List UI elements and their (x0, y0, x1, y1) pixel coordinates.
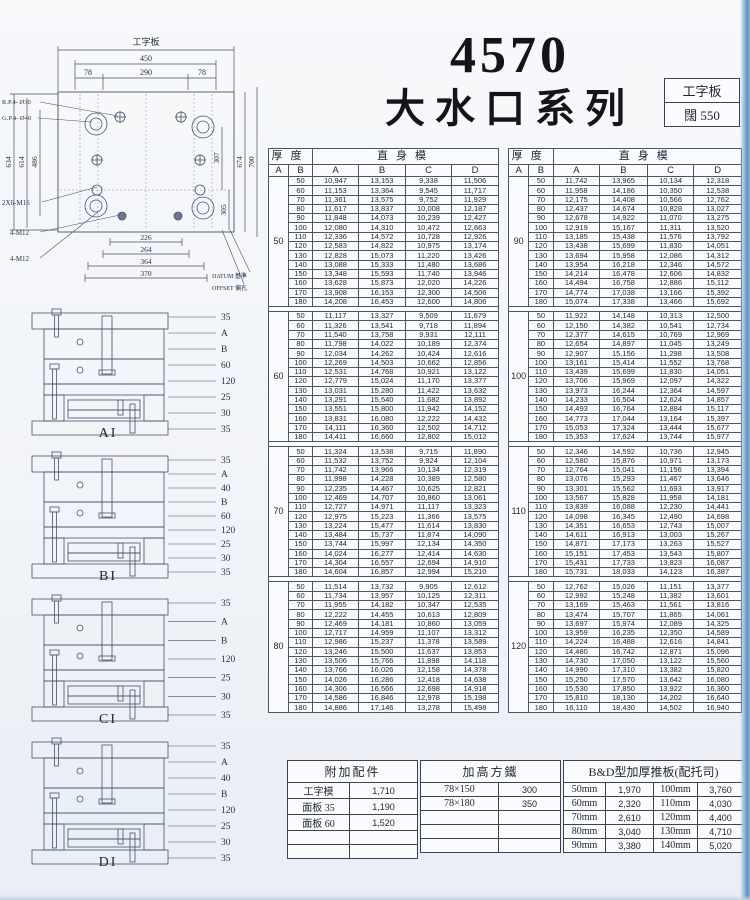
dim-value: 11,311 (647, 223, 694, 232)
table-row: 11012,33614,57210,72812,926 (269, 232, 499, 241)
dim-value: 14,467 (359, 484, 406, 493)
table-row: 10012,91915,16711,31113,520 (509, 223, 742, 232)
header-straight-mold: 直身模 (553, 149, 741, 165)
item-label (421, 811, 499, 825)
dim-value: 13,758 (359, 330, 406, 339)
table-row: 12012,77915,02411,17013,377 (269, 377, 499, 386)
dim-value: 11,170 (406, 377, 452, 386)
dim-value: 16,913 (600, 530, 648, 539)
diagram-dim-label: 25 (221, 822, 231, 832)
dim-value: 15,677 (694, 423, 742, 432)
item-label (421, 825, 499, 839)
table-row: 18015,07417,33813,46615,692 (509, 297, 742, 306)
dim-value: 11,874 (406, 530, 452, 539)
dim-value: 15,560 (694, 656, 742, 665)
table-row: 13013,69415,95812,08614,312 (509, 251, 742, 260)
thickness-b-value: 60 (529, 456, 553, 465)
thickness-b-value: 130 (529, 521, 553, 530)
dim-value: 13,823 (647, 558, 694, 567)
thickness-a-value: 100 (509, 312, 529, 442)
dim-value: 15,151 (553, 549, 600, 558)
dim-value: 10,472 (406, 223, 452, 232)
dim-value: 15,237 (359, 638, 406, 647)
dim-value: 13,122 (452, 367, 499, 376)
dim-value: 13,301 (553, 484, 600, 493)
table-row: 18015,73118,03314,12316,387 (509, 568, 742, 577)
dim-value: 12,762 (553, 582, 600, 591)
header-subcol-c: C (406, 165, 452, 177)
dim-value: 15,807 (694, 549, 742, 558)
thickness-b-value: 50 (289, 312, 313, 321)
dim-value: 12,734 (694, 321, 742, 330)
thickness-b-value: 50 (529, 582, 553, 591)
dim-value: 13,768 (694, 358, 742, 367)
dim-value: 13,917 (694, 484, 742, 493)
diagram-dim-label: 40 (221, 484, 231, 494)
table-row: 16014,30616,56612,69814,918 (269, 684, 499, 693)
thickness-b-value: 170 (529, 423, 553, 432)
mold-section-ai: 35AB60120253035 (18, 308, 268, 436)
dim-value: 13,173 (694, 456, 742, 465)
thickness-b-value: 110 (529, 367, 553, 376)
thickness-b-value: 130 (289, 521, 313, 530)
table-row: 17015,43117,73313,82316,087 (509, 558, 742, 567)
thickness-b-value: 50 (529, 312, 553, 321)
table-row: 9011,84814,07310,23912,427 (269, 214, 499, 223)
dim-value: 13,965 (600, 177, 648, 186)
thickness-b-value: 90 (289, 214, 313, 223)
dim-value: 17,624 (600, 433, 648, 442)
dim-value: 14,228 (359, 475, 406, 484)
table-row: 13013,97316,24412,36414,597 (509, 386, 742, 395)
table-row: 7012,17514,40810,56612,762 (509, 195, 742, 204)
item-value: 5,020 (698, 839, 744, 853)
dim-value: 15,737 (359, 530, 406, 539)
item-value: 1,710 (350, 783, 418, 799)
item-label: 工字模 (288, 783, 350, 799)
thickness-b-value: 160 (289, 549, 313, 558)
dim-value: 10,828 (647, 204, 694, 213)
dim-value: 12,802 (406, 433, 452, 442)
header-col-b: B (289, 165, 313, 177)
dim-value: 14,615 (600, 330, 648, 339)
item-label: 80mm (564, 825, 606, 839)
dim-value: 14,024 (313, 549, 359, 558)
table-row: 13014,73017,05013,12215,560 (509, 656, 742, 665)
thickness-b-value: 100 (529, 493, 553, 502)
dim-value: 15,250 (553, 675, 600, 684)
table-row: 11012,53114,76810,92113,122 (269, 367, 499, 376)
thickness-b-value: 60 (529, 591, 553, 600)
dim-value: 13,628 (313, 279, 359, 288)
dim-700: 700 (247, 156, 256, 168)
dim-value: 12,020 (406, 279, 452, 288)
thickness-b-value: 70 (289, 195, 313, 204)
thickness-b-value: 140 (529, 666, 553, 675)
thickness-b-value: 180 (289, 297, 313, 306)
dim-value: 11,117 (313, 312, 359, 321)
dim-value: 14,832 (694, 269, 742, 278)
dim-value: 13,088 (313, 260, 359, 269)
dim-value: 11,151 (647, 582, 694, 591)
dim-value: 16,764 (600, 405, 648, 414)
dim-value: 14,730 (553, 656, 600, 665)
thickness-b-value: 160 (289, 684, 313, 693)
table-row: 10012,46914,70710,86013,061 (269, 493, 499, 502)
mold-section-di: 35A40B120253035 (18, 737, 268, 865)
table-row: 16014,77317,04413,16415,397 (509, 414, 742, 423)
diagram-dim-label: A (221, 470, 228, 480)
dim-value: 14,707 (359, 493, 406, 502)
dim-value: 13,003 (647, 530, 694, 539)
thickness-b-value: 120 (529, 647, 553, 656)
table-row: 9013,30115,56211,69313,917 (509, 484, 742, 493)
dim-value: 15,810 (553, 694, 600, 703)
diagram-dim-label: 25 (221, 674, 231, 684)
dim-value: 14,502 (647, 703, 694, 712)
table-row: 9013,69715,97412,08914,325 (509, 619, 742, 628)
dim-value: 14,322 (694, 377, 742, 386)
dim-value: 15,974 (600, 619, 648, 628)
dim-value: 16,110 (553, 703, 600, 712)
dim-value: 10,971 (647, 456, 694, 465)
dim-value: 11,958 (553, 186, 600, 195)
table-row: 工字模1,710 (288, 783, 418, 799)
table-row: 11014,22416,48812,61614,841 (509, 638, 742, 647)
dim-value: 14,090 (452, 530, 499, 539)
dim-value: 13,364 (359, 186, 406, 195)
mold-section-bi: 35A40B60120253035 (18, 451, 268, 579)
dim-value: 13,278 (406, 703, 452, 712)
dim-value: 14,312 (694, 251, 742, 260)
item-label: 110mm (654, 797, 698, 811)
dim-value: 12,502 (406, 423, 452, 432)
item-label: 60mm (564, 797, 606, 811)
table-row: 面板 601,520 (288, 815, 418, 831)
dim-value: 11,734 (313, 591, 359, 600)
dim-value: 12,694 (406, 558, 452, 567)
dim-value: 14,073 (359, 214, 406, 223)
dim-value: 15,267 (694, 530, 742, 539)
dim-value: 15,397 (694, 414, 742, 423)
table-row: 78×180350 (421, 797, 561, 811)
dim-value: 15,167 (600, 223, 648, 232)
dim-value: 17,038 (600, 288, 648, 297)
bottom-table-title: 加高方鐵 (421, 761, 561, 783)
dim-value: 11,637 (406, 647, 452, 656)
diagram-dim-label: 25 (221, 393, 231, 403)
dim-value: 12,336 (313, 232, 359, 241)
dim-value: 14,181 (694, 493, 742, 502)
thickness-b-value: 80 (289, 340, 313, 349)
thickness-b-value: 90 (529, 214, 553, 223)
dim-value: 13,538 (359, 447, 406, 456)
dim-value: 12,538 (694, 186, 742, 195)
table-row: 16014,02416,27712,41414,630 (269, 549, 499, 558)
dim-value: 13,946 (452, 269, 499, 278)
table-row: 705011,32413,5389,71511,890 (269, 447, 499, 456)
table-row: 12012,97515,22311,36613,575 (269, 512, 499, 521)
dim-value: 14,061 (694, 610, 742, 619)
header-thickness: 厚度 (269, 149, 313, 165)
diagram-dim-label: B (221, 345, 227, 355)
dim-value: 11,958 (647, 493, 694, 502)
dim-value: 13,973 (553, 386, 600, 395)
table-row: 7012,76415,04111,15613,394 (509, 465, 742, 474)
dim-value: 11,422 (406, 386, 452, 395)
dim-value: 11,298 (647, 349, 694, 358)
table-row: 12014,48016,74212,87115,096 (509, 647, 742, 656)
dim-value: 10,008 (406, 204, 452, 213)
header-subcol-b: B (600, 165, 648, 177)
dim-value: 10,541 (647, 321, 694, 330)
diagram-dim-label: 25 (221, 540, 231, 550)
table-row: 13012,82815,07311,22013,426 (269, 251, 499, 260)
dim-value: 17,044 (600, 414, 648, 423)
dim-value: 10,728 (406, 232, 452, 241)
thickness-b-value: 140 (289, 666, 313, 675)
dim-value: 14,214 (553, 269, 600, 278)
dim-value: 14,224 (553, 638, 600, 647)
dim-307: 307 (212, 152, 221, 164)
dim-value: 12,437 (553, 204, 600, 213)
drawing-plate-label: 工字板 (132, 36, 159, 47)
dim-value: 16,504 (600, 395, 648, 404)
dim-value: 13,185 (553, 232, 600, 241)
thickness-b-value: 160 (529, 549, 553, 558)
dim-value: 15,820 (694, 666, 742, 675)
thickness-b-value: 160 (529, 684, 553, 693)
dim-value: 9,905 (406, 582, 452, 591)
dim-value: 14,310 (359, 223, 406, 232)
dim-value: 13,792 (694, 232, 742, 241)
table-row: 14014,99017,31013,38215,820 (509, 666, 742, 675)
spec-box-line1: 工字板 (665, 79, 739, 102)
table-row: 8013,07615,29311,46713,646 (509, 475, 742, 484)
thickness-b-value: 60 (529, 321, 553, 330)
item-value: 2,320 (606, 797, 654, 811)
dim-value: 14,841 (694, 638, 742, 647)
dim-value: 17,310 (600, 666, 648, 675)
item-label: 120mm (654, 811, 698, 825)
thickness-b-value: 130 (529, 386, 553, 395)
dim-value: 14,208 (313, 297, 359, 306)
dim-value: 13,382 (647, 666, 694, 675)
thickness-b-value: 90 (289, 349, 313, 358)
header-subcol-d: D (452, 165, 499, 177)
table-row: 60mm2,320110mm4,030 (564, 797, 744, 811)
dim-value: 11,693 (647, 484, 694, 493)
table-row: 70mm2,610120mm4,400 (564, 811, 744, 825)
thickness-b-value: 150 (289, 269, 313, 278)
dim-value: 15,353 (553, 433, 600, 442)
table-row: 11012,98615,23711,37813,589 (269, 638, 499, 647)
dim-290: 290 (140, 68, 152, 77)
thickness-b-value: 90 (289, 619, 313, 628)
table-row: 13013,22415,47711,61413,830 (269, 521, 499, 530)
diagram-label-bi: BI (18, 569, 198, 585)
item-label: 78×180 (421, 797, 499, 811)
thickness-b-value: 160 (289, 279, 313, 288)
callout-m12b: 4-M12 (10, 255, 30, 263)
thickness-b-value: 120 (289, 647, 313, 656)
dim-value: 9,509 (406, 312, 452, 321)
dim-value: 10,860 (406, 493, 452, 502)
thickness-b-value: 110 (529, 638, 553, 647)
callout-rp: R.P.4- Ø30 (2, 99, 31, 106)
main-table-right: 厚度直身模ABABCD905011,74213,96510,13412,3186… (508, 148, 742, 713)
thickness-b-value: 130 (529, 251, 553, 260)
thickness-b-value: 80 (529, 610, 553, 619)
thickness-b-value: 160 (529, 414, 553, 423)
table-row: 6011,95814,18610,35012,538 (509, 186, 742, 195)
dim-value: 9,338 (406, 177, 452, 186)
dim-value: 11,361 (313, 195, 359, 204)
dim-value: 11,998 (313, 475, 359, 484)
dim-226: 226 (140, 233, 152, 242)
dim-value: 13,752 (359, 456, 406, 465)
dim-value: 13,061 (452, 493, 499, 502)
dim-value: 15,530 (553, 684, 600, 693)
dim-value: 13,567 (553, 493, 600, 502)
dim-value: 11,929 (452, 195, 499, 204)
dim-value: 12,269 (313, 358, 359, 367)
thickness-b-value: 170 (289, 288, 313, 297)
diagram-dim-label: B (221, 790, 227, 800)
dim-value: 10,662 (406, 358, 452, 367)
dim-value: 14,181 (359, 619, 406, 628)
dim-value: 11,717 (452, 186, 499, 195)
dim-value: 11,865 (647, 610, 694, 619)
dim-674: 674 (235, 156, 244, 168)
dim-value: 15,073 (359, 251, 406, 260)
item-value (350, 831, 418, 845)
dim-value: 10,921 (406, 367, 452, 376)
dim-value: 10,347 (406, 601, 452, 610)
series-title: 大水口系列 (330, 84, 690, 134)
table-row: 15014,87117,17313,26315,527 (509, 540, 742, 549)
table-row: 17014,30416,55712,69414,910 (269, 558, 499, 567)
dim-value: 13,954 (553, 260, 600, 269)
thickness-b-value: 80 (289, 610, 313, 619)
dim-value: 14,822 (359, 242, 406, 251)
dim-value: 10,566 (647, 195, 694, 204)
table-row: 6012,99215,24811,38213,601 (509, 591, 742, 600)
dim-value: 14,325 (694, 619, 742, 628)
dim-value: 12,986 (313, 638, 359, 647)
table-row: 80mm3,040130mm4,710 (564, 825, 744, 839)
table-row: 15014,49316,76412,88415,117 (509, 405, 742, 414)
dim-value: 15,477 (359, 521, 406, 530)
dim-value: 14,638 (452, 675, 499, 684)
table-row: 17013,90816,15312,30014,506 (269, 288, 499, 297)
thickness-b-value: 100 (529, 628, 553, 637)
item-label: 50mm (564, 783, 606, 797)
diagram-dim-label: 30 (221, 838, 231, 848)
dim-value: 13,426 (452, 251, 499, 260)
diagram-dim-label: A (221, 758, 228, 768)
dim-value: 12,764 (553, 465, 600, 474)
dim-value: 12,856 (452, 358, 499, 367)
risers-table: 加高方鐵78×15030078×180350 (420, 760, 561, 853)
dim-value: 10,975 (406, 242, 452, 251)
dim-value: 11,326 (313, 321, 359, 330)
dim-value: 12,319 (452, 465, 499, 474)
dim-value: 12,235 (313, 484, 359, 493)
dim-614: 614 (17, 156, 26, 168)
dim-value: 13,394 (694, 465, 742, 474)
dim-value: 11,220 (406, 251, 452, 260)
thickness-b-value: 120 (289, 242, 313, 251)
thickness-b-value: 80 (289, 475, 313, 484)
table-row (421, 839, 561, 853)
dim-value: 12,535 (452, 601, 499, 610)
dim-value: 13,484 (313, 530, 359, 539)
dim-value: 12,624 (647, 395, 694, 404)
dim-value: 15,392 (694, 288, 742, 297)
diagram-dim-label: 35 (221, 568, 231, 578)
dim-value: 15,117 (694, 405, 742, 414)
dim-value: 16,080 (359, 414, 406, 423)
table-row: 12012,58314,82210,97513,174 (269, 242, 499, 251)
item-value (499, 811, 561, 825)
dim-value: 12,727 (313, 503, 359, 512)
dim-value: 12,926 (452, 232, 499, 241)
dim-value: 12,580 (452, 475, 499, 484)
dim-value: 11,740 (406, 269, 452, 278)
item-label (288, 845, 350, 859)
dim-value: 16,286 (359, 675, 406, 684)
thickness-a-value: 60 (269, 312, 289, 442)
dim-value: 13,174 (452, 242, 499, 251)
table-row: 11013,83916,08812,23014,441 (509, 503, 742, 512)
dim-value: 11,506 (452, 177, 499, 186)
header-subcol-c: C (647, 165, 694, 177)
thickness-b-value: 80 (529, 340, 553, 349)
page-header: 4570 大水口系列 (330, 28, 690, 134)
dim-value: 11,742 (553, 177, 600, 186)
table-row: 16015,15117,45313,54315,807 (509, 549, 742, 558)
plate-drawing: 工字板 450 78 290 78 R.P.4- Ø30 G.P.4- Ø40 … (0, 32, 268, 314)
table-row: 17014,58616,84612,97815,198 (269, 694, 499, 703)
dim-value: 10,350 (647, 186, 694, 195)
diagram-dim-label: B (221, 636, 227, 646)
dim-value: 12,583 (313, 242, 359, 251)
dim-value: 13,506 (313, 656, 359, 665)
dim-value: 18,130 (600, 694, 648, 703)
dim-value: 12,134 (406, 540, 452, 549)
thickness-b-value: 120 (289, 512, 313, 521)
dim-value: 13,732 (359, 582, 406, 591)
thickness-b-value: 130 (289, 656, 313, 665)
dim-value: 12,175 (553, 195, 600, 204)
note-offset: OFFSET 偏孔 (212, 284, 247, 292)
diagram-dim-label: A (221, 329, 228, 339)
table-row: 18014,88617,14613,27815,498 (269, 703, 499, 712)
dim-value: 15,873 (359, 279, 406, 288)
table-row: 13013,50615,76611,89814,118 (269, 656, 499, 665)
thickness-b-value: 180 (529, 703, 553, 712)
thickness-b-value: 60 (289, 321, 313, 330)
thickness-b-value: 170 (289, 423, 313, 432)
dim-value: 11,070 (647, 214, 694, 223)
dim-value: 10,769 (647, 330, 694, 339)
table-row: 15013,74415,99712,13414,350 (269, 540, 499, 549)
dim-value: 14,493 (553, 405, 600, 414)
dim-value: 12,034 (313, 349, 359, 358)
dim-value: 12,969 (694, 330, 742, 339)
dim-value: 12,427 (452, 214, 499, 223)
